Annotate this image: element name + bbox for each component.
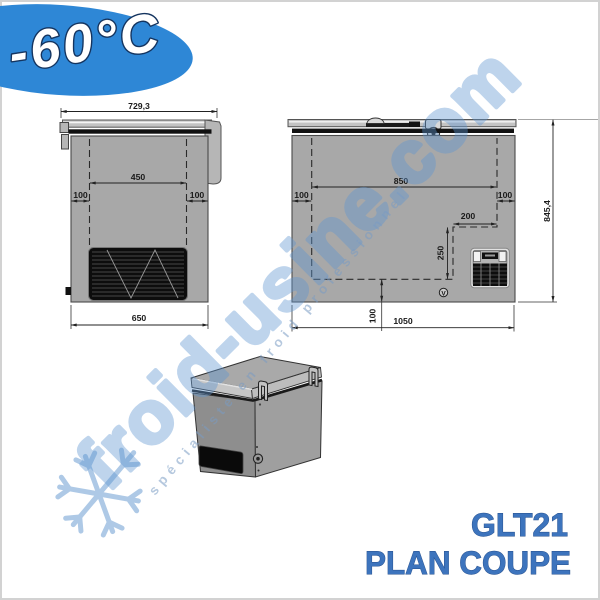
svg-text:PLAN COUPE: PLAN COUPE <box>365 545 571 581</box>
svg-text:250: 250 <box>436 246 446 261</box>
svg-text:GLT21: GLT21 <box>471 507 568 543</box>
svg-text:100: 100 <box>73 190 88 200</box>
svg-text:V: V <box>441 290 446 297</box>
svg-text:200: 200 <box>461 211 476 221</box>
svg-text:450: 450 <box>131 172 146 182</box>
svg-text:100: 100 <box>498 190 513 200</box>
svg-text:100: 100 <box>190 190 205 200</box>
svg-text:845,4: 845,4 <box>542 200 552 222</box>
svg-text:1050: 1050 <box>393 316 412 326</box>
svg-text:100: 100 <box>368 309 378 324</box>
svg-text:729,3: 729,3 <box>128 101 150 111</box>
svg-text:650: 650 <box>132 313 147 323</box>
svg-text:100: 100 <box>294 190 309 200</box>
